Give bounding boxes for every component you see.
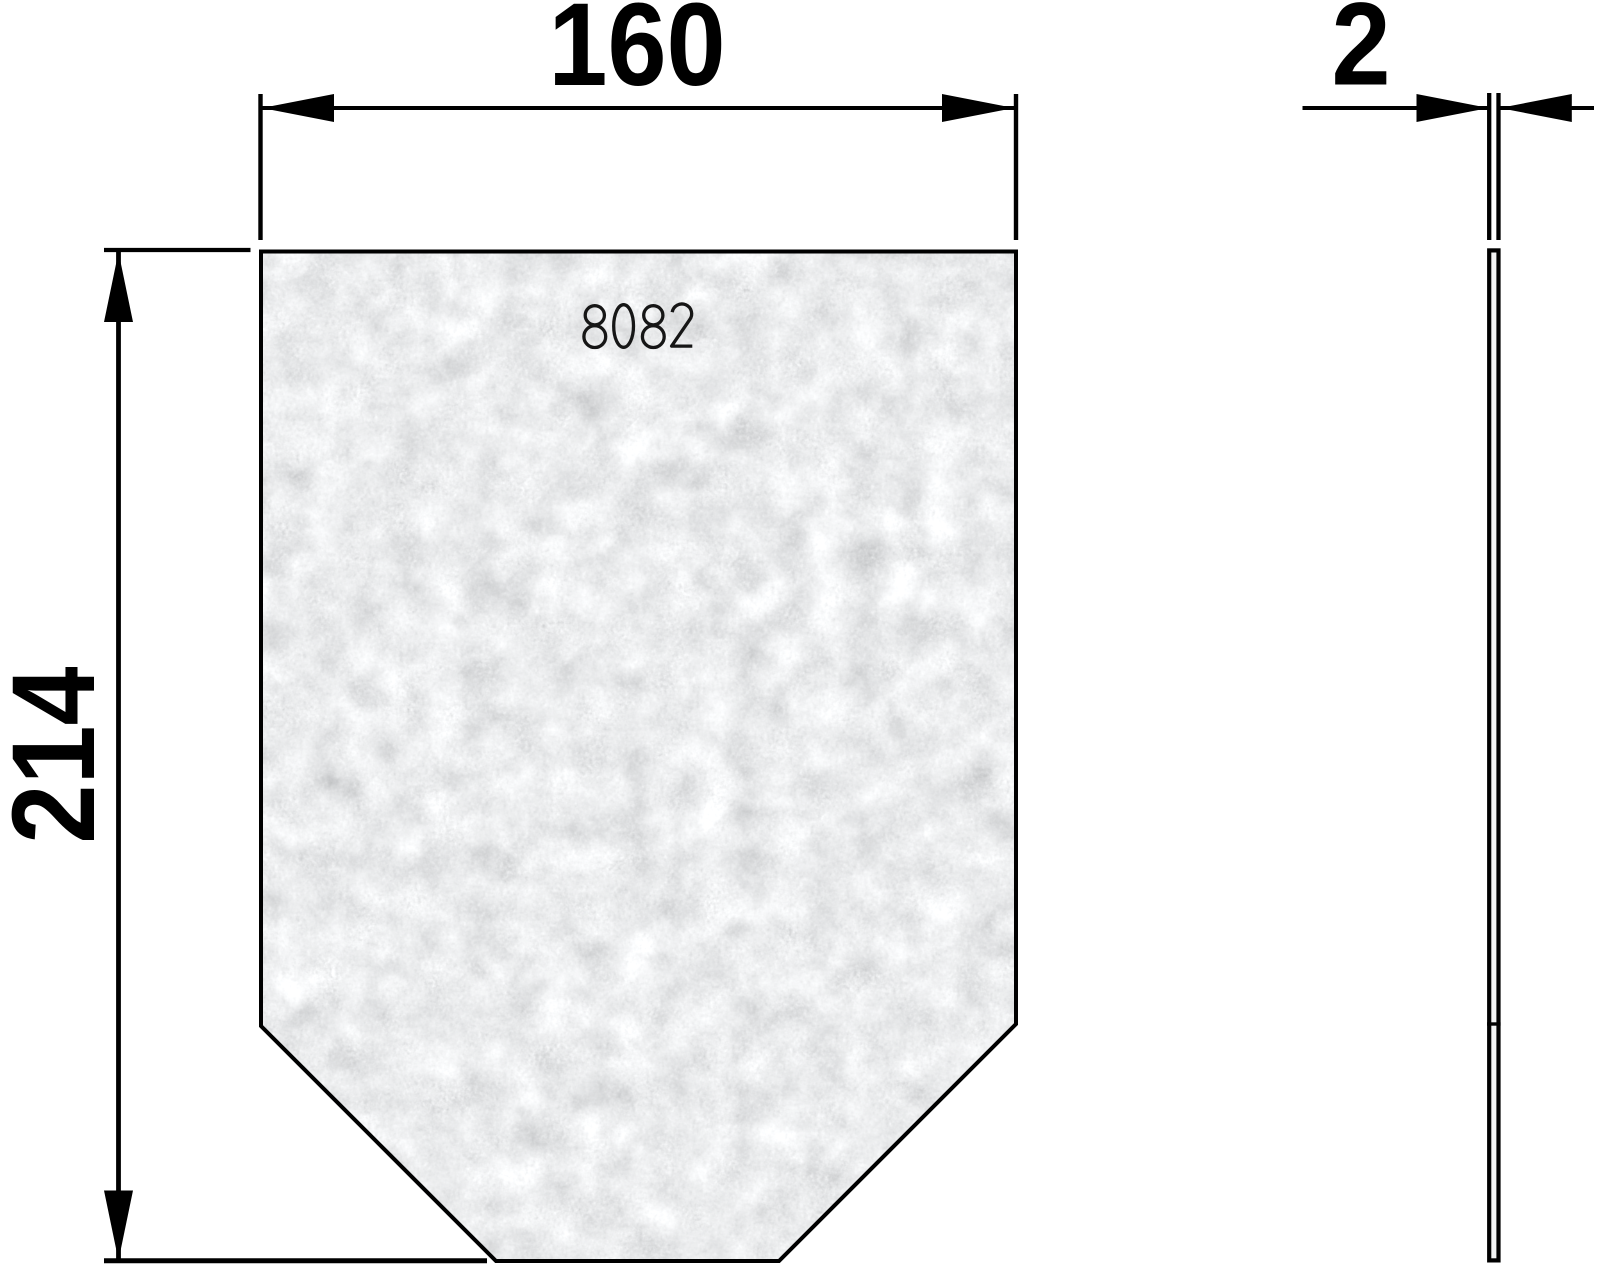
svg-text:214: 214	[0, 666, 119, 843]
svg-text:160: 160	[548, 0, 725, 110]
svg-text:2: 2	[1331, 0, 1390, 110]
